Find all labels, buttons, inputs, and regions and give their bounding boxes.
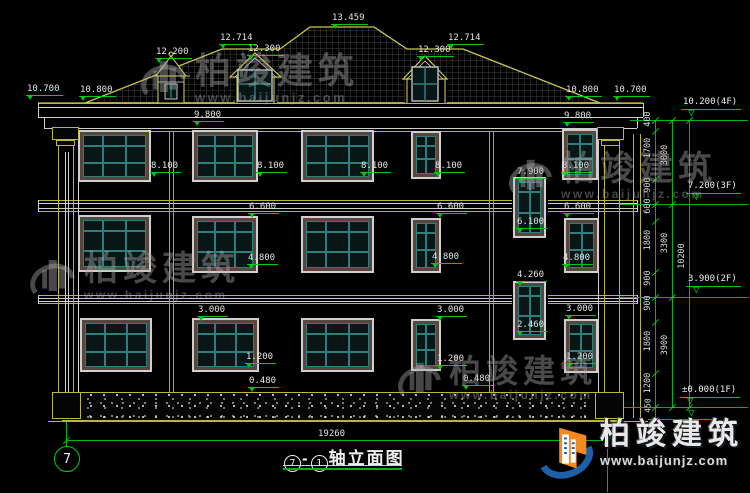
title-underline-green <box>283 468 402 470</box>
dim-label-stair2-top: 4.260 <box>516 270 547 282</box>
window-sash <box>416 324 436 366</box>
fascia-edge-right <box>637 117 638 128</box>
window-3f-2 <box>192 130 258 182</box>
dim-label-sill-2f: 4.800 <box>562 253 593 265</box>
belt-2f <box>38 298 512 299</box>
chain-line-3 <box>689 120 690 407</box>
dim-label-dormer-left: 12.300 <box>247 44 284 56</box>
pilaster-capital-right <box>597 127 624 140</box>
window-sash <box>197 135 253 177</box>
dim-label-stair-bottom: 6.100 <box>516 217 547 229</box>
dim-label-stair-top: 7.900 <box>516 167 547 179</box>
cornice-line <box>38 117 643 118</box>
level-marker-4f: 10.200(4F) <box>681 97 741 110</box>
fascia-edge-left <box>44 117 45 128</box>
dim-label-lintel-1f: 3.000 <box>565 304 596 316</box>
elevation-drawing-canvas: 13.459 12.714 12.714 12.200 12.300 12.30… <box>0 0 750 493</box>
window-3f-1 <box>78 130 151 182</box>
belt-3f <box>38 200 512 201</box>
cornice-line <box>38 107 643 108</box>
brand-site: www.baijunjz.com <box>600 453 744 468</box>
pilaster-shaft-right <box>604 146 605 392</box>
pilaster-shaft-right <box>619 146 620 392</box>
dim-label-sill-1f: 1.200 <box>245 352 276 364</box>
pilaster-shaft-left <box>73 146 74 392</box>
downpipe-left <box>68 152 69 392</box>
level-marker-3f: 7.200(3F) <box>686 181 741 194</box>
dim-label-lintel-3f: 9.800 <box>193 110 224 122</box>
pilaster-shaft-left <box>58 146 59 392</box>
downpipe-left <box>65 152 66 392</box>
dim-label-lintel-1f: 3.000 <box>197 305 228 317</box>
chain-dim: 3900 <box>660 323 670 367</box>
window-1f-1 <box>80 318 152 372</box>
window-sash <box>306 221 369 268</box>
dim-label-stair2-bottom: 2.460 <box>516 320 547 332</box>
window-sash <box>83 135 146 177</box>
dim-label-sill-3f: 8.100 <box>150 161 181 173</box>
dim-label-roofbase: 10.800 <box>79 85 116 97</box>
downpipe-right <box>640 134 641 418</box>
level-marker-1f: ±0.000(1F) <box>680 385 740 398</box>
belt-2f <box>38 301 512 302</box>
pilaster-base-right <box>595 392 624 419</box>
level-line-2f <box>620 297 748 298</box>
dim-label-plinth: 0.480 <box>248 376 279 388</box>
belt-2f <box>548 298 637 299</box>
ext-line-left <box>66 420 67 447</box>
pilaster-neck-left <box>56 140 75 146</box>
dim-label-sill-3f: 8.100 <box>561 161 592 173</box>
chain-dim: 10200 <box>677 234 687 278</box>
dim-label-lintel-2f: 6.600 <box>436 202 467 214</box>
downpipe-right <box>633 134 634 418</box>
dim-label-cupola: 12.200 <box>155 47 192 59</box>
dim-label-sill-3f: 8.100 <box>256 161 287 173</box>
fascia-line <box>44 128 637 129</box>
belt-end <box>38 200 39 212</box>
window-sash <box>197 221 253 268</box>
brand-name: 柏竣建筑 <box>600 420 744 450</box>
level-marker-ground: ▽ <box>688 408 695 418</box>
dim-label-sill-2f: 4.800 <box>431 252 462 264</box>
overall-dim-text: 19260 <box>318 429 345 439</box>
dim-label-sill-2f: 4.800 <box>247 253 278 265</box>
window-sash <box>83 220 146 267</box>
dim-label-sill-3f: 8.100 <box>360 161 391 173</box>
dim-label-eave: 10.700 <box>613 85 650 97</box>
dim-label-lintel-3f: 9.800 <box>563 111 594 123</box>
belt-2f <box>548 295 637 296</box>
dim-label-plinth: 0.480 <box>462 374 493 386</box>
level-marker-2f: 3.900(2F) <box>686 274 741 287</box>
window-2f-1 <box>78 215 151 272</box>
window-sash <box>85 323 147 367</box>
pilaster-capital-left <box>52 127 79 140</box>
belt-2f <box>38 303 512 304</box>
dim-label-eave: 10.700 <box>26 84 63 96</box>
dim-label-lintel-1f: 3.000 <box>436 305 467 317</box>
dim-label-dormer-right: 12.300 <box>417 45 454 57</box>
pilaster-neck-right <box>601 140 620 146</box>
belt-3f <box>548 200 637 201</box>
plinth-band <box>62 392 620 422</box>
dim-label-ridge-right: 12.714 <box>447 33 484 45</box>
window-sash <box>416 136 436 174</box>
title-text: 轴立面图 <box>329 449 405 468</box>
dim-label-ridge-main: 13.459 <box>331 13 368 25</box>
chain-dim: 3300 <box>660 221 670 265</box>
window-sash <box>306 323 369 367</box>
belt-2f <box>548 301 637 302</box>
window-2f-3 <box>301 216 374 273</box>
window-1f-3 <box>301 318 374 372</box>
belt-end <box>637 200 638 212</box>
dim-label-sill-1f: 1.200 <box>436 354 467 366</box>
dim-label-roofbase: 10.800 <box>565 85 602 97</box>
overall-dim-line <box>66 440 607 441</box>
title-separator: - <box>302 449 310 468</box>
brand-logo-icon <box>534 420 596 482</box>
dim-label-sill-1f: 1.200 <box>565 352 596 364</box>
cornice-edge-left <box>38 103 39 117</box>
belt-end <box>38 295 39 304</box>
chain-line-2 <box>672 120 673 407</box>
pilaster-base-left <box>52 392 81 419</box>
dim-label-lintel-2f: 6.600 <box>563 202 594 214</box>
chain-dim: 1800 <box>643 319 653 363</box>
wall-joint-line <box>489 131 494 392</box>
level-line-3f <box>620 204 748 205</box>
eave-line <box>38 103 643 104</box>
axis-bubble-label: 7 <box>63 452 71 467</box>
level-line-1f <box>610 407 748 408</box>
watermark-logo-icon <box>26 252 78 304</box>
belt-2f <box>38 295 512 296</box>
axis-bubble-7: 7 <box>54 446 80 472</box>
dim-label-lintel-2f: 6.600 <box>248 202 279 214</box>
brand-logo-block: 柏竣建筑 www.baijunjz.com <box>534 420 744 482</box>
chain-dim: 3000 <box>660 133 670 177</box>
dim-label-sill-3f: 8.100 <box>434 161 465 173</box>
roof-graphic <box>38 18 648 106</box>
